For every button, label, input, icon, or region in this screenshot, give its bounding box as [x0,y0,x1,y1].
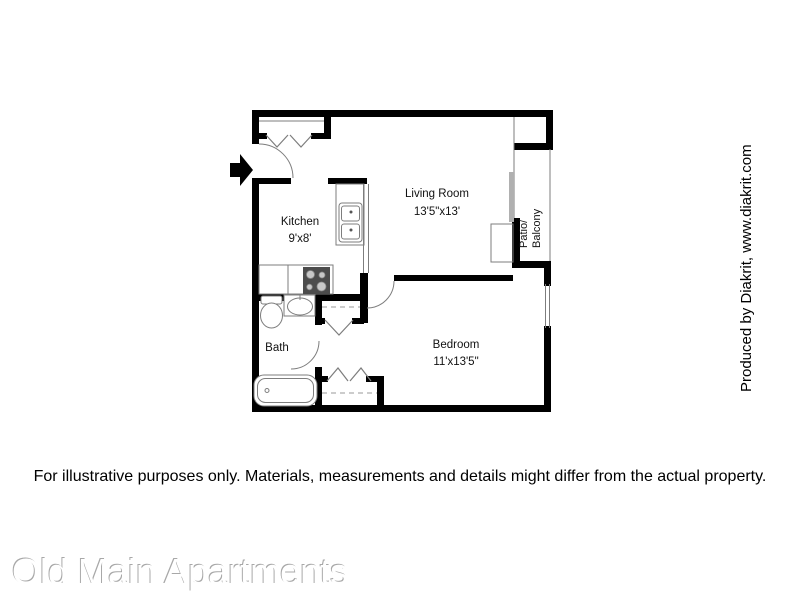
page-title: Old Main Apartments [12,551,348,593]
floorplan-drawing: Kitchen 9'x8' Living Room 13'5"x13' Bedr… [0,0,800,600]
bedroom-closet-door-icon [327,368,348,381]
bath-label: Bath [265,342,289,354]
sliding-door-icon [509,172,514,222]
linen-closet-door-icon [325,320,353,335]
living-room-label: Living Room [405,188,469,200]
kitchen-label: Kitchen [281,216,319,228]
door-swings [259,144,394,369]
patio-label-line2: Balcony [531,208,543,248]
patio-label: Patio/ Balcony [518,208,543,248]
bathtub-icon [254,375,317,406]
entry-door-swing [259,144,293,178]
disclaimer-text: For illustrative purposes only. Material… [0,468,800,486]
bedroom-door-swing [367,281,394,308]
outer-walls [252,110,553,412]
patio-label-line1: Patio/ [518,219,530,248]
bath-door-swing [291,341,319,369]
bedroom-label: Bedroom [433,339,480,351]
stove-icon [303,267,330,294]
bedroom-dims: 11'x13'5" [433,356,478,368]
entry-arrow-icon [230,154,253,186]
living-room-dims: 13'5"x13' [414,206,460,218]
kitchen-dims: 9'x8' [289,233,312,245]
producer-credit: Produced by Diakrit, www.diakrit.com [738,144,755,392]
toilet-icon [261,296,283,328]
bedroom-window-icon [544,283,551,329]
kitchen-sink-icon [339,203,362,242]
bath-sink-icon [284,295,315,316]
entry-closet-door-icon [290,135,312,147]
patio-storage-unit [491,224,513,262]
floorplan-page: Kitchen 9'x8' Living Room 13'5"x13' Bedr… [0,0,800,600]
